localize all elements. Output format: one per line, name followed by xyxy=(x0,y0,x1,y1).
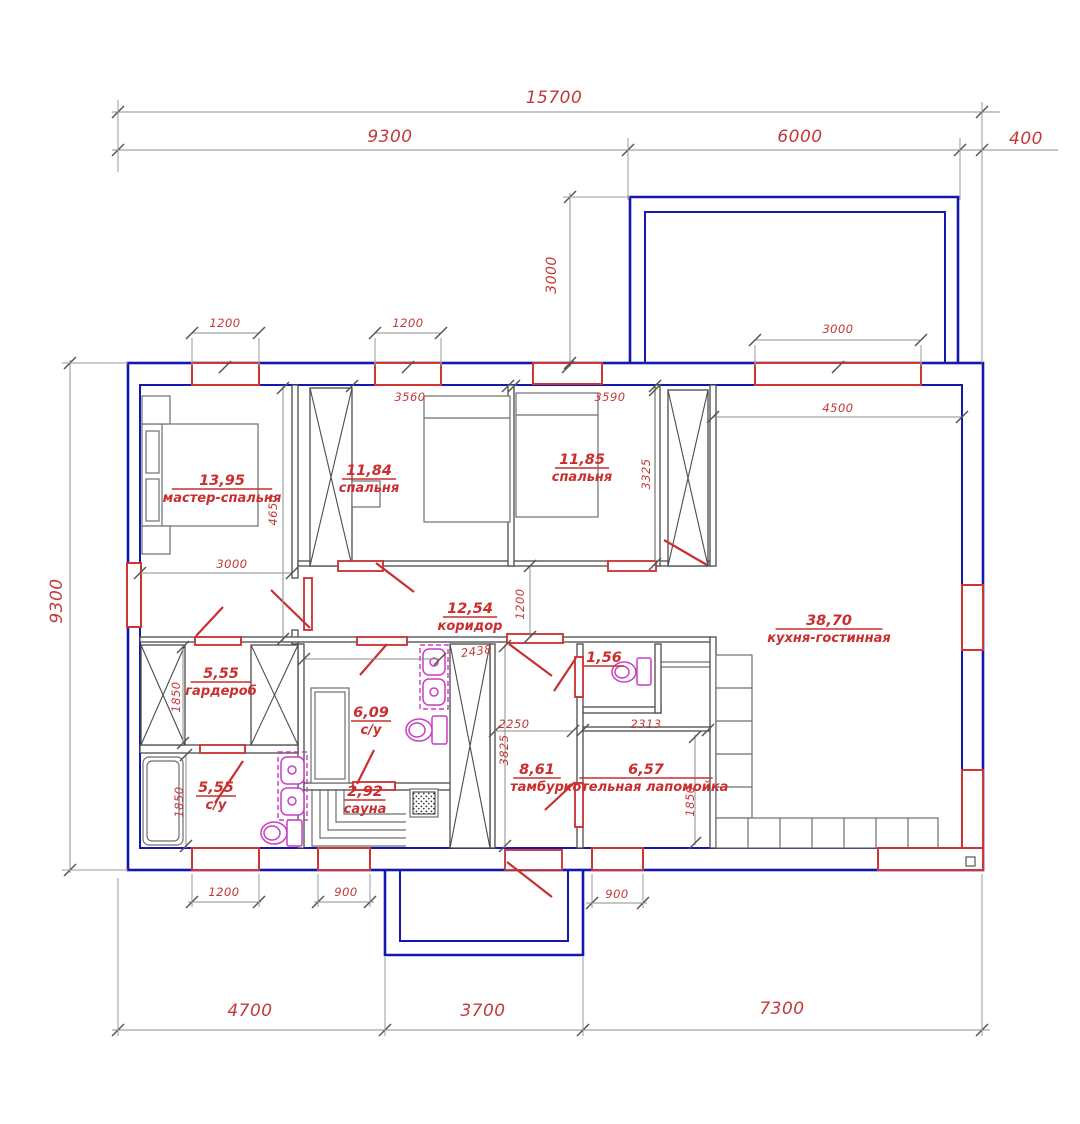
dim-text-8: 3560 xyxy=(394,390,425,404)
dim-text-12: 3325 xyxy=(639,458,653,489)
dim-text-20: 1850 xyxy=(169,681,183,712)
sauna-stove xyxy=(410,789,438,817)
dim-text-17: 3825 xyxy=(497,734,511,765)
window-right xyxy=(962,585,983,650)
room-area-bedroom-1: 11,84 xyxy=(346,463,392,479)
room-area-wc: 1,56 xyxy=(586,650,622,666)
floor-plan-svg: 1570093006000400300030001200120035603590… xyxy=(0,0,1080,1124)
room-name-bedroom-2: спальня xyxy=(552,470,613,485)
room-area-boiler-room: 6,57 xyxy=(628,762,665,778)
window-left xyxy=(127,563,141,627)
door-master-wardrobe xyxy=(195,637,241,645)
dim-text-10: 4500 xyxy=(822,401,853,415)
room-name-master-bedroom: мастер-спальня xyxy=(163,491,282,506)
room-area-master-bedroom: 13,95 xyxy=(199,473,245,489)
dim-text-9: 3590 xyxy=(594,390,625,404)
door-tambour xyxy=(507,634,563,643)
dim-text-2: 6000 xyxy=(777,127,822,147)
dim-text-27: 3700 xyxy=(460,1001,505,1021)
room-name-corridor: коридор xyxy=(438,619,503,634)
porch xyxy=(385,870,583,955)
dim-text-13: 3000 xyxy=(216,557,247,571)
room-area-kitchen-living: 38,70 xyxy=(806,613,852,629)
floor-plan-canvas: 1570093006000400300030001200120035603590… xyxy=(0,0,1080,1124)
window-bottom-1 xyxy=(192,848,259,870)
room-area-wardrobe: 5,55 xyxy=(203,666,239,682)
dim-text-5: 3000 xyxy=(822,322,853,336)
dim-text-7: 1200 xyxy=(392,316,423,330)
terrace xyxy=(630,197,958,363)
door-bedroom-1 xyxy=(338,561,383,571)
room-name-sauna: сауна xyxy=(344,802,387,817)
room-name-bedroom-1: спальня xyxy=(339,481,400,496)
dim-text-23: 1200 xyxy=(208,885,239,899)
room-name-wardrobe: гардероб xyxy=(185,684,257,699)
dim-text-21: 1850 xyxy=(172,786,186,817)
dim-text-6: 1200 xyxy=(209,316,240,330)
corner-post xyxy=(966,857,975,866)
toilet-bathroom-2 xyxy=(261,820,302,846)
room-name-bathroom-2: с/у xyxy=(206,798,227,813)
dim-text-14: 1200 xyxy=(513,588,527,619)
room-area-corridor: 12,54 xyxy=(447,601,493,617)
bed-1 xyxy=(424,396,510,522)
dim-text-25: 900 xyxy=(605,887,628,901)
dim-text-0: 15700 xyxy=(526,88,583,108)
shower xyxy=(311,688,349,783)
room-name-bathroom-1: с/у xyxy=(361,723,382,738)
dim-text-24: 900 xyxy=(334,885,357,899)
window-bottom-2 xyxy=(318,848,370,870)
room-area-bedroom-2: 11,85 xyxy=(559,452,605,468)
door-bathroom-1 xyxy=(357,637,407,645)
room-name-kitchen-living: кухня-гостинная xyxy=(767,631,891,646)
dim-text-26: 4700 xyxy=(227,1001,272,1021)
dim-text-28: 7300 xyxy=(759,999,804,1019)
door-wardrobe-bath xyxy=(200,745,245,753)
room-name-boiler-room: котельная лапомойка xyxy=(564,780,729,795)
dim-text-18: 2313 xyxy=(630,717,661,731)
window-bottom-3 xyxy=(592,848,643,870)
toilet-bathroom-1 xyxy=(406,716,447,744)
dim-text-16: 2250 xyxy=(498,717,529,731)
dim-text-1: 9300 xyxy=(367,127,412,147)
dim-text-22: 9300 xyxy=(47,578,67,623)
dim-text-3: 400 xyxy=(1009,129,1043,149)
room-area-bathroom-1: 6,09 xyxy=(353,705,389,721)
dim-text-4: 3000 xyxy=(544,256,560,294)
room-name-tambour: тамбур xyxy=(510,780,564,795)
room-area-bathroom-2: 5,55 xyxy=(198,780,234,796)
door-wc xyxy=(575,657,583,697)
room-area-tambour: 8,61 xyxy=(519,762,555,778)
room-area-sauna: 2,92 xyxy=(347,784,383,800)
